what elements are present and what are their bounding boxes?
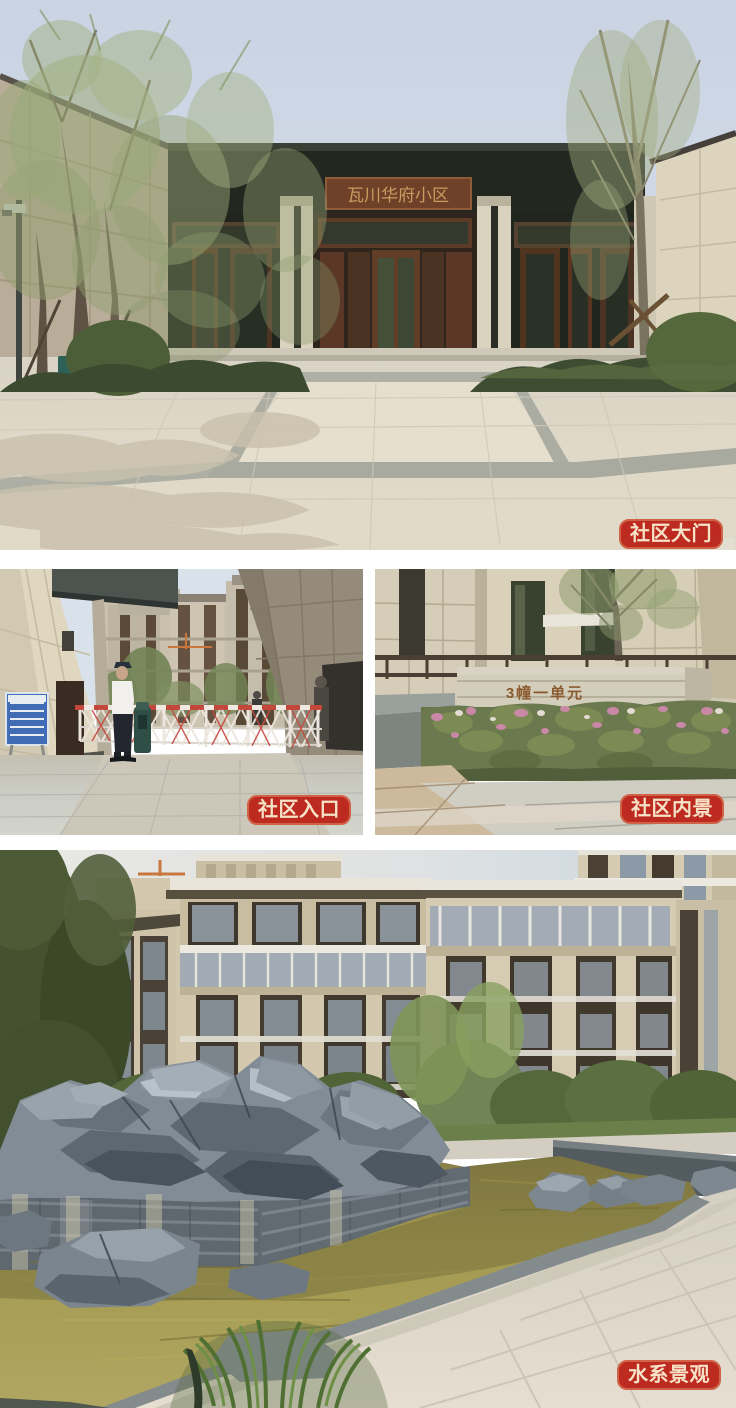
svg-text:3幢一单元: 3幢一单元 bbox=[506, 684, 584, 702]
svg-text:瓦川华府小区: 瓦川华府小区 bbox=[347, 186, 449, 205]
